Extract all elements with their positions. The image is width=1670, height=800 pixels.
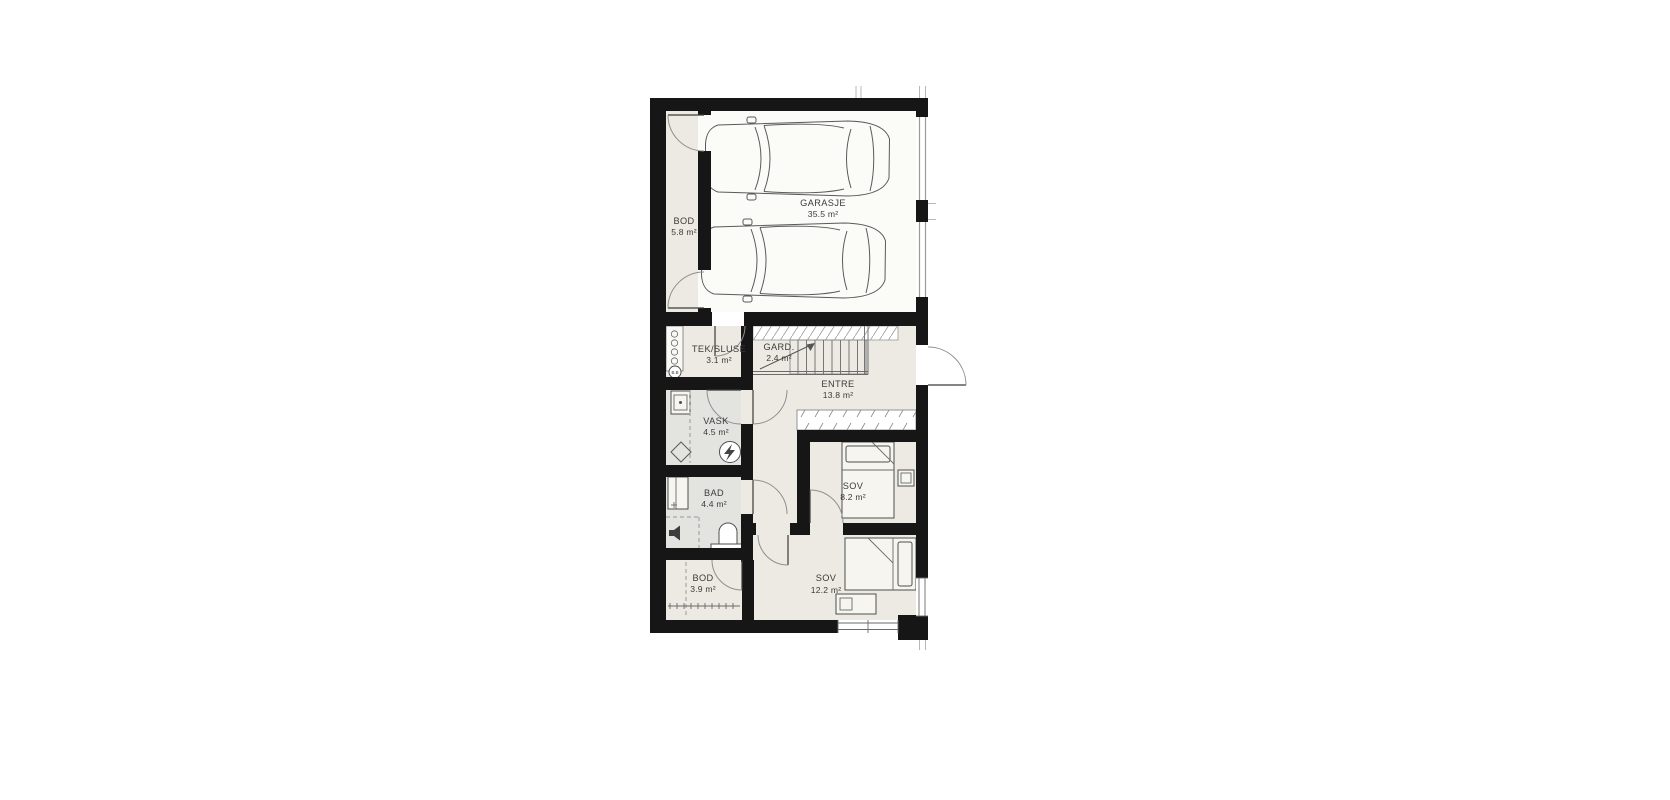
room-area: 3.1 m² xyxy=(706,355,732,365)
bb-marker: B.B xyxy=(669,366,681,378)
room-area: 35.5 m² xyxy=(808,209,839,219)
room-area: 3.9 m² xyxy=(690,584,716,594)
floor-plan: B.B xyxy=(0,0,1670,800)
room-name: TEK/SLUSE xyxy=(692,344,746,354)
window-icon xyxy=(916,578,928,616)
shower-cabinet-icon xyxy=(668,477,688,509)
room-name: BOD xyxy=(673,216,694,226)
pillow xyxy=(898,542,912,586)
room-label-bad: BAD 4.4 m² xyxy=(701,488,727,509)
room-area: 5.8 m² xyxy=(671,227,697,237)
room-area: 4.5 m² xyxy=(703,427,729,437)
room-name: GARD. xyxy=(763,342,794,352)
room-label-sov-1: SOV 8.2 m² xyxy=(840,481,866,502)
room-name: VASK xyxy=(703,416,729,426)
room-area: 13.8 m² xyxy=(823,390,854,400)
room-name: ENTRE xyxy=(821,379,854,389)
entry-door-swing-icon xyxy=(928,347,966,385)
window-icon xyxy=(838,620,898,633)
closet-hatch xyxy=(753,326,898,340)
room-label-vask: VASK 4.5 m² xyxy=(703,416,729,437)
room-area: 2.4 m² xyxy=(766,353,792,363)
floor-plan-page: B.B xyxy=(0,0,1670,800)
sov2-bed xyxy=(845,538,916,590)
room-area: 12.2 m² xyxy=(811,585,842,595)
room-name: SOV xyxy=(843,481,864,491)
room-label-gard: GARD. 2.4 m² xyxy=(763,342,794,363)
room-name: BOD xyxy=(692,573,713,583)
room-label-bod-inner: BOD 3.9 m² xyxy=(690,573,716,594)
room-name: BAD xyxy=(704,488,724,498)
wardrobe-icon xyxy=(797,410,916,430)
dresser-icon xyxy=(836,594,876,614)
room-area: 8.2 m² xyxy=(840,492,866,502)
room-name: GARASJE xyxy=(800,198,846,208)
nightstand-icon xyxy=(898,470,914,486)
room-label-bod-garage: BOD 5.8 m² xyxy=(671,216,697,237)
room-name: SOV xyxy=(816,573,837,583)
gard-closet xyxy=(753,326,898,340)
sov1-bed xyxy=(842,442,894,518)
bb-marker-label: B.B xyxy=(671,370,678,375)
room-area: 4.4 m² xyxy=(701,499,727,509)
water-heater-icon xyxy=(720,442,741,463)
room-label-entre: ENTRE 13.8 m² xyxy=(821,379,854,400)
